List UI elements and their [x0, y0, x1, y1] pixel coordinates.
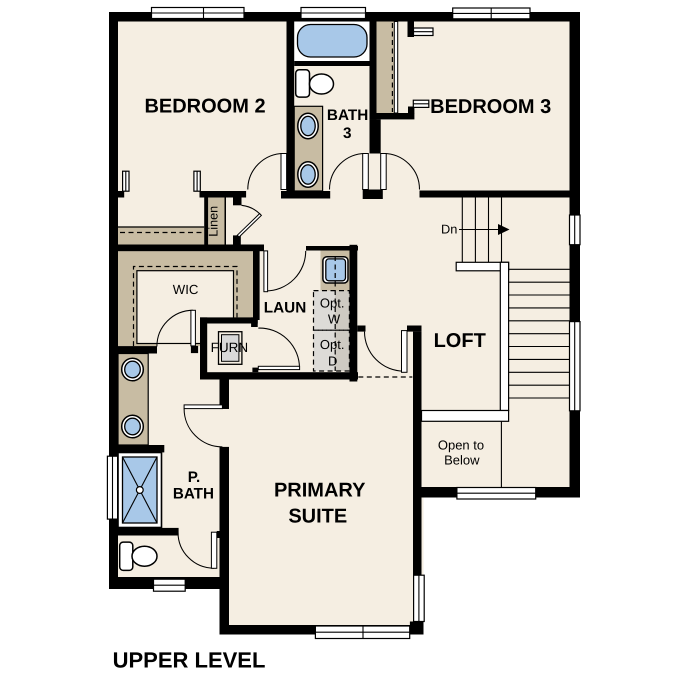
- svg-text:WIC: WIC: [173, 282, 199, 297]
- svg-text:Opt.: Opt.: [320, 337, 345, 352]
- svg-text:BATH: BATH: [327, 107, 368, 124]
- svg-text:BATH: BATH: [173, 485, 214, 502]
- svg-text:Linen: Linen: [207, 206, 221, 237]
- svg-text:3: 3: [343, 125, 352, 142]
- svg-text:Opt.: Opt.: [320, 296, 345, 311]
- svg-text:Below: Below: [444, 453, 480, 468]
- svg-text:UPPER LEVEL: UPPER LEVEL: [113, 648, 266, 673]
- svg-text:P.: P.: [188, 469, 200, 486]
- svg-text:Open to: Open to: [438, 437, 484, 452]
- svg-text:Dn: Dn: [441, 221, 457, 236]
- svg-text:SUITE: SUITE: [288, 505, 347, 527]
- svg-text:W: W: [328, 312, 341, 327]
- svg-text:BEDROOM 3: BEDROOM 3: [430, 96, 551, 118]
- svg-text:BEDROOM 2: BEDROOM 2: [144, 96, 265, 118]
- svg-text:PRIMARY: PRIMARY: [274, 479, 366, 501]
- svg-text:LOFT: LOFT: [434, 330, 486, 352]
- svg-text:FURN: FURN: [211, 340, 249, 355]
- svg-text:D: D: [328, 353, 337, 368]
- svg-text:LAUN: LAUN: [264, 300, 307, 317]
